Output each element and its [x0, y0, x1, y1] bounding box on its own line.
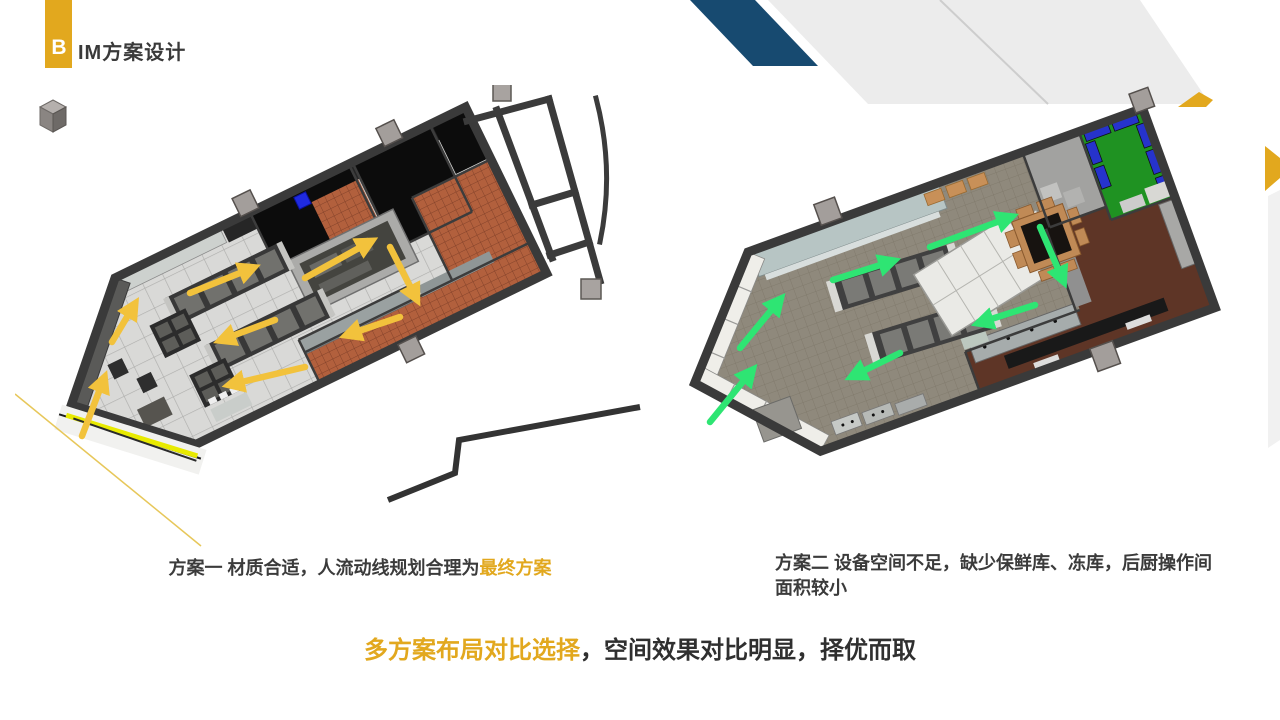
- detached-zigzag-wall: [388, 407, 640, 500]
- pillar-cube: [40, 100, 66, 132]
- caption-option1-text: 方案一 材质合适，人流动线规划合理为: [169, 558, 480, 578]
- caption-option2-text: 方案二 设备空间不足，缺少保鲜库、冻库，后厨操作间面积较小: [775, 553, 1212, 598]
- floor-plan-option1-render: [15, 85, 660, 565]
- option2-building: [655, 85, 1233, 503]
- page-title: IM方案设计: [78, 36, 186, 65]
- caption-option2: 方案二 设备空间不足，缺少保鲜库、冻库，后厨操作间面积较小: [775, 551, 1227, 601]
- conclusion-highlight: 多方案布局对比选择: [364, 637, 580, 664]
- option1-building: [15, 89, 555, 510]
- conclusion-line: 多方案布局对比选择，空间效果对比明显，择优而取: [0, 630, 1280, 665]
- conclusion-rest: ，空间效果对比明显，择优而取: [580, 637, 916, 664]
- caption-option1: 方案一 材质合适，人流动线规划合理为最终方案: [120, 556, 600, 581]
- floor-plan-option2-render: [655, 85, 1280, 510]
- caption-option1-highlight: 最终方案: [480, 558, 552, 578]
- title-badge-letter: B: [47, 36, 71, 60]
